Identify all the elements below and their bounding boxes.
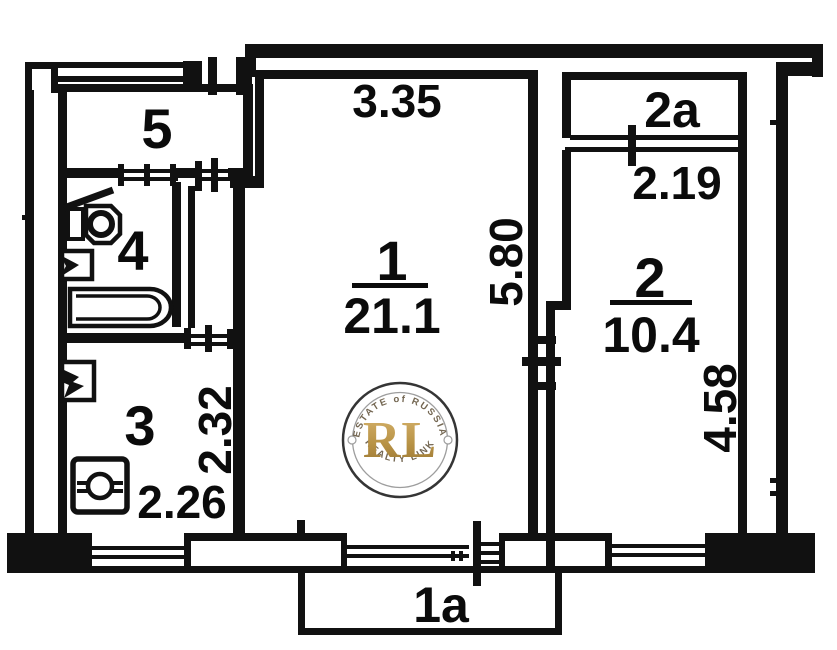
dimension-room1-width: 3.35 bbox=[352, 75, 442, 127]
stove-burner-icon bbox=[88, 474, 112, 498]
kitchen-fixtures bbox=[62, 362, 127, 512]
balcony-2a-label: 2a bbox=[644, 82, 701, 138]
dimension-room2-height: 4.58 bbox=[694, 363, 746, 453]
room-1-number: 1 bbox=[376, 229, 407, 292]
room-2-number: 2 bbox=[634, 246, 665, 309]
dimension-room2-width: 2.19 bbox=[632, 157, 722, 209]
watermark-left-dot bbox=[348, 436, 356, 444]
watermark-logo: ESTATE of RUSSIA REALTY LINK RL bbox=[343, 383, 457, 497]
room-1-area: 21.1 bbox=[343, 288, 440, 344]
balcony-1a-label: 1a bbox=[413, 577, 470, 633]
watermark-right-dot bbox=[444, 436, 452, 444]
bathroom-fixtures bbox=[60, 190, 171, 326]
room-4-number: 4 bbox=[117, 219, 148, 282]
room-2-area: 10.4 bbox=[602, 307, 700, 363]
room-3-number: 3 bbox=[124, 394, 155, 457]
watermark-initials: RL bbox=[363, 412, 437, 469]
dimension-room1-height: 5.80 bbox=[480, 217, 532, 307]
toilet-bowl-icon bbox=[90, 213, 112, 235]
dimension-kitchen-height: 2.32 bbox=[189, 385, 241, 475]
floor-plan-drawing: 1 21.1 2 10.4 3 4 5 2a 1a 3.35 5.80 2.19… bbox=[0, 0, 837, 650]
toilet-tank-icon bbox=[68, 209, 83, 239]
floor-plan: 1 21.1 2 10.4 3 4 5 2a 1a 3.35 5.80 2.19… bbox=[0, 0, 837, 650]
room-2-underline bbox=[610, 300, 692, 305]
dimension-kitchen-width: 2.26 bbox=[137, 476, 227, 528]
room-5-number: 5 bbox=[141, 97, 172, 160]
